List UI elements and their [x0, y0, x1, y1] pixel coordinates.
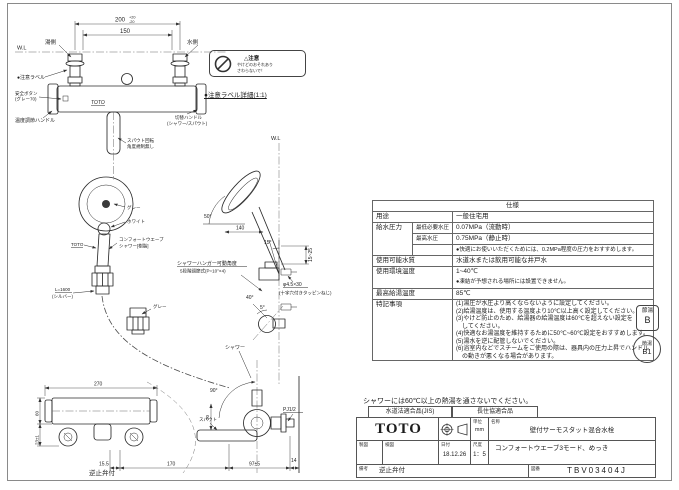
- hose-length-label: L=1600: [55, 287, 71, 292]
- cold-side-label: 水側: [187, 38, 199, 46]
- head-gray-label: グレー: [127, 204, 141, 211]
- draft-label: 製図: [359, 442, 368, 447]
- safety-button-label-2: (グレー70): [15, 96, 37, 103]
- unit-value: mm: [471, 427, 488, 434]
- spec-pressure-max-value: 0.75MPa（静止時）: [453, 234, 653, 245]
- angle-head-label: 50°: [204, 214, 212, 220]
- date-value: 18.12.26: [439, 451, 470, 459]
- dim-width-label: 270: [94, 382, 103, 388]
- caution-line2: さわらないで！: [237, 68, 265, 74]
- sheet-caution-note: シャワーには60℃以上の熱湯を通さないでください。: [363, 396, 532, 406]
- setsuyu-b-grade: B: [637, 315, 658, 326]
- spec-usage-value: 一般住宅用: [453, 212, 653, 223]
- switch-handle-label-2: (シャワー/スパウト): [167, 120, 208, 126]
- caution-detail-caption: ●注意ラベル詳細(1:1): [204, 89, 267, 99]
- check-label: 検図: [385, 442, 394, 447]
- spec-hot-value: 85℃: [453, 289, 653, 300]
- hook-ring: [98, 223, 110, 235]
- supply-elbow-cold: [171, 54, 189, 86]
- angle-swing-label: 90°: [210, 388, 218, 394]
- spec-water-label: 使用可能水質: [373, 256, 453, 267]
- spec-note-5: (5)湯水を逆に配管しないでください。: [456, 339, 652, 347]
- prohibition-icon: [214, 55, 232, 73]
- switch-handle-label-1: 切替ハンドル: [175, 114, 202, 121]
- scale-label: 尺度: [473, 442, 482, 447]
- dim-pitch-value: 200: [115, 18, 126, 24]
- remarks-label: 備考: [359, 466, 368, 471]
- temp-handle-label: 温度調節ハンドル: [15, 117, 55, 124]
- unit-cell: 単位 mm: [471, 418, 489, 441]
- shower-head-front: [79, 177, 133, 266]
- date-cell: 日付 18.12.26: [439, 441, 471, 465]
- setsuyu-b-label: 節湯: [637, 308, 658, 315]
- hose-color-label: (シルバー): [52, 294, 73, 299]
- dim-offset-label: 23±1: [35, 435, 40, 445]
- spec-env-cell: 1~40℃ ●凍結が予想される場所には設置できません。: [453, 267, 653, 289]
- supply-elbow-hot: [66, 54, 84, 86]
- spec-notes-label: 特記事項: [373, 300, 453, 360]
- hot-side-label: 湯側: [45, 38, 57, 46]
- dim-d-label: 14: [291, 458, 297, 464]
- spec-title: 仕様: [373, 201, 653, 212]
- spout-arm: [197, 430, 257, 441]
- dim-depth-label: 60: [35, 410, 40, 416]
- spout-rotation-note-1: スパウト回転: [127, 137, 154, 144]
- remarks-cell: 備考 逆止弁付: [357, 465, 529, 477]
- plan-view-drawing: シャワー 90° スパウト PJ1/2 20: [15, 338, 345, 483]
- spec-table: 仕様 用途 一般住宅用 給水圧力 最低必要水圧 0.07MPa（流動時） 最高水…: [372, 200, 654, 361]
- shower-handle: [97, 234, 110, 266]
- angle-hanger-label: 15°: [264, 240, 272, 246]
- plan-remark: 逆止弁付: [89, 468, 116, 477]
- handle-brand-label: TOTO: [71, 242, 84, 247]
- spec-usage-label: 用途: [373, 212, 453, 223]
- drawing-sheet: 200 +20 -20 150 W.L 湯側 水側 ●注意ラベル: [0, 0, 679, 490]
- spec-note-4: (4)快適なお湯温度を維持するために50℃~60℃設定をおすすめします。: [456, 331, 652, 339]
- spec-env-note: ●凍結が予想される場所には設置できません。: [456, 277, 652, 287]
- remarks-value: 逆止弁付: [379, 465, 528, 477]
- valve-plan-view: 270 60 23±1: [35, 382, 158, 447]
- scale-value: 1：5: [471, 451, 488, 459]
- name-cell: 名称 壁付サーモスタット混合水栓: [489, 418, 655, 441]
- draft-cell: 製図: [357, 441, 383, 465]
- wall-connection: [271, 414, 294, 432]
- head-white-label: ホワイト: [127, 219, 145, 224]
- date-label: 日付: [441, 442, 450, 447]
- spec-pressure-label: 給水圧力: [373, 223, 413, 256]
- spec-pressure-min-label: 最低必要水圧: [413, 223, 453, 234]
- caution-title: △注意: [244, 54, 259, 62]
- screw-size-label: φ4.5×30: [283, 282, 302, 288]
- hose-connector: [92, 266, 113, 294]
- projection-symbol-icon: [440, 421, 470, 438]
- caution-label-detail: △注意 やけどのおそれあり さわらないで！: [209, 50, 306, 77]
- scale-cell: 尺度 1：5: [471, 441, 489, 465]
- angle-small-label: 5°: [260, 305, 265, 311]
- hanger-gray-label: グレー: [153, 303, 167, 310]
- dim-c-label: 97±5: [249, 462, 260, 468]
- caution-label-pointer: ●注意ラベル: [17, 74, 45, 81]
- dim-b-label: 170: [167, 462, 176, 468]
- spec-pressure-note: ●快適にお使いいただくためには、0.2MPa程度の圧力をおすすめします。: [453, 245, 653, 256]
- name-label: 名称: [491, 419, 500, 424]
- spec-note-6: (6)浴室内などでスチームをご使用の際は、器具内の圧力上昇でハンドル: [456, 346, 652, 354]
- wall-line-label: W.L: [17, 46, 26, 52]
- body-brand-text: TOTO: [91, 100, 105, 106]
- spout-rotation-note-2: 角度規制無し: [127, 143, 154, 150]
- shower-name-2: シャワー[樹脂]: [119, 243, 149, 250]
- setsuyu-b1-badge: 節湯 B1: [633, 335, 661, 363]
- spec-notes-cell: (1)湯圧が水圧より高くならないように設定してください。 (2)給湯温度は、使用…: [453, 300, 653, 360]
- spec-pressure-max-label: 最高水圧: [413, 234, 453, 245]
- dim-reach-label: 140: [236, 226, 245, 232]
- projection-cell: [439, 418, 471, 441]
- center-knob: [122, 74, 133, 85]
- dim-pitch-tol-up: +20: [129, 16, 135, 20]
- wall-line-label-side: W.L: [271, 136, 280, 142]
- drawing-number: TBV03404J: [539, 465, 655, 477]
- dim-pitch-tol-dn: -20: [129, 20, 135, 24]
- product-name: 壁付サーモスタット混合水栓: [489, 427, 655, 435]
- shower-swing-label: シャワー: [225, 345, 245, 351]
- shower-name-1: コンフォートウエーブ: [119, 236, 164, 242]
- spec-note-3: (3)やけど防止のため、給湯器の給湯温度は60℃を超えない設定を: [456, 316, 652, 324]
- description-cell: コンフォートウエーブ3モード、めっき: [489, 441, 655, 465]
- spec-note-2: (2)給湯温度は、使用する温度より10℃以上高く設定してください。: [456, 309, 652, 317]
- spec-note-1: (1)湯圧が水圧より高くならないように設定してください。: [456, 301, 652, 309]
- outlet-elbow-side: [253, 306, 285, 340]
- setsuyu-b-badge: 節湯 B: [636, 305, 659, 331]
- valve-body: TOTO: [48, 74, 206, 115]
- dim-height-label: 15~25: [308, 248, 314, 262]
- number-label: 図番: [531, 466, 540, 471]
- screw-type-label: (十字穴付きタッピンねじ): [279, 290, 332, 297]
- spec-pressure-min-value: 0.07MPa（流動時）: [453, 223, 653, 234]
- safety-button-part: [63, 96, 68, 101]
- number-cell: 図番 TBV03404J: [529, 465, 655, 477]
- title-block: TOTO 単位 mm 名称 壁付サーモスタット混合水栓 製図 検図: [356, 417, 656, 478]
- spec-water-value: 水道水または飲用可能な井戸水: [453, 256, 653, 267]
- dim-inner-150: 150: [83, 29, 172, 50]
- spec-note-6b: の動きが悪くなる場合があります。: [456, 354, 652, 361]
- angle-down-label: 40°: [246, 295, 254, 301]
- shower-head-side: [217, 166, 285, 274]
- spec-pressure-spacer: [413, 245, 453, 256]
- spec-env-value: 1~40℃: [456, 267, 652, 277]
- setsuyu-b1-grade: B1: [634, 347, 660, 356]
- dim-e-label: 20: [205, 414, 210, 420]
- brand-logo-cell: TOTO: [357, 418, 439, 441]
- unit-label: 単位: [473, 419, 482, 424]
- check-cell: 検図: [383, 441, 439, 465]
- dim-inner-value: 150: [120, 29, 131, 35]
- dim-a-label: 15.5: [99, 462, 109, 468]
- spec-note-3b: してください。: [456, 324, 652, 332]
- temp-handle-part: [48, 84, 58, 114]
- spec-hot-label: 最高給湯温度: [373, 289, 453, 300]
- toto-logo: TOTO: [375, 421, 422, 437]
- break-line: [147, 382, 195, 473]
- spec-env-label: 使用環境温度: [373, 267, 453, 289]
- thread-label: PJ1/2: [283, 407, 296, 413]
